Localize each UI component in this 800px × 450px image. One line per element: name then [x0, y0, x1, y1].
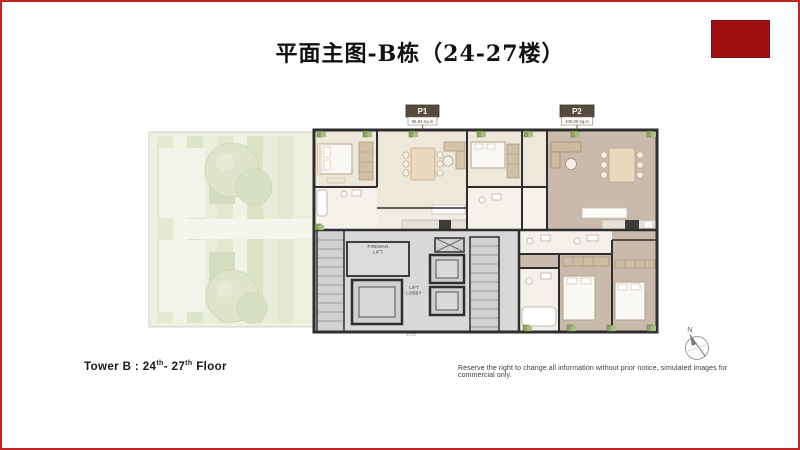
- floor-caption-sup1: th: [156, 360, 163, 367]
- page-title: 平面主图-B栋（24-27楼）: [42, 36, 798, 68]
- slide-page: 平面主图-B栋（24-27楼）: [0, 0, 800, 450]
- bed: [471, 142, 505, 168]
- unit-tag-p2-code: P2: [572, 107, 582, 116]
- unit-tag-p1-code: P1: [418, 107, 428, 116]
- kitchen-island: [582, 208, 627, 218]
- bathtub: [522, 307, 556, 326]
- toilet: [527, 238, 533, 244]
- garden-area: [149, 132, 314, 327]
- kitchen-counter: [602, 220, 657, 229]
- floor-caption: Tower B : 24th- 27th Floor: [84, 360, 227, 373]
- kitchen-counter: [402, 220, 467, 229]
- sink: [541, 273, 551, 279]
- wardrobe: [563, 257, 609, 266]
- wardrobe: [615, 260, 655, 268]
- toilet: [574, 238, 580, 244]
- wardrobe: [359, 142, 373, 180]
- floor-plan: FIREMAN LIFT LIFT LOBBY 42.04: [147, 100, 662, 337]
- toilet: [479, 197, 485, 203]
- fireman-lift-label-line1: FIREMAN: [368, 244, 389, 249]
- sink: [352, 190, 361, 196]
- floor-caption-sup2: th: [185, 360, 192, 367]
- staircase: [470, 237, 499, 332]
- fireman-lift-label-line2: LIFT: [373, 250, 383, 255]
- lift-shaft: [430, 287, 464, 315]
- unit-tag-p1: P1 96.83 Sq.m: [406, 105, 439, 130]
- fireman-lift-shaft: [352, 280, 402, 324]
- lift-lobby-label-line1: LIFT: [409, 285, 419, 290]
- dimension-label: 42.04: [406, 333, 416, 337]
- floor-caption-suffix: Floor: [193, 361, 227, 373]
- sink: [541, 235, 550, 241]
- compass: N: [676, 322, 720, 366]
- brand-accent-block: [711, 20, 770, 58]
- wardrobe: [507, 144, 519, 178]
- unit-tag-p2-area: 105.08 Sq.m: [565, 119, 589, 124]
- lift-shaft: [430, 255, 464, 283]
- bed: [563, 276, 595, 320]
- staircase: [317, 230, 344, 332]
- toilet: [341, 191, 347, 197]
- lift-lobby-label-line2: LOBBY: [406, 291, 421, 296]
- bed: [615, 282, 645, 320]
- floor-plan-drawing: FIREMAN LIFT LIFT LOBBY 42.04: [147, 100, 662, 337]
- garden-path: [177, 219, 314, 239]
- unit-tag-p1-area: 96.83 Sq.m: [412, 119, 434, 124]
- unit-tag-p2: P2 105.08 Sq.m: [560, 105, 594, 130]
- sink: [492, 194, 501, 200]
- sink: [587, 235, 598, 241]
- toilet: [526, 278, 532, 284]
- disclaimer-text: Reserve the right to change all informat…: [458, 365, 748, 379]
- kitchen-island: [432, 205, 465, 214]
- bathtub: [317, 190, 327, 216]
- floor-caption-prefix: Tower B : 24: [84, 361, 156, 373]
- floor-caption-mid: - 27: [164, 361, 185, 373]
- compass-north-label: N: [687, 325, 692, 334]
- service-shaft: [435, 238, 464, 252]
